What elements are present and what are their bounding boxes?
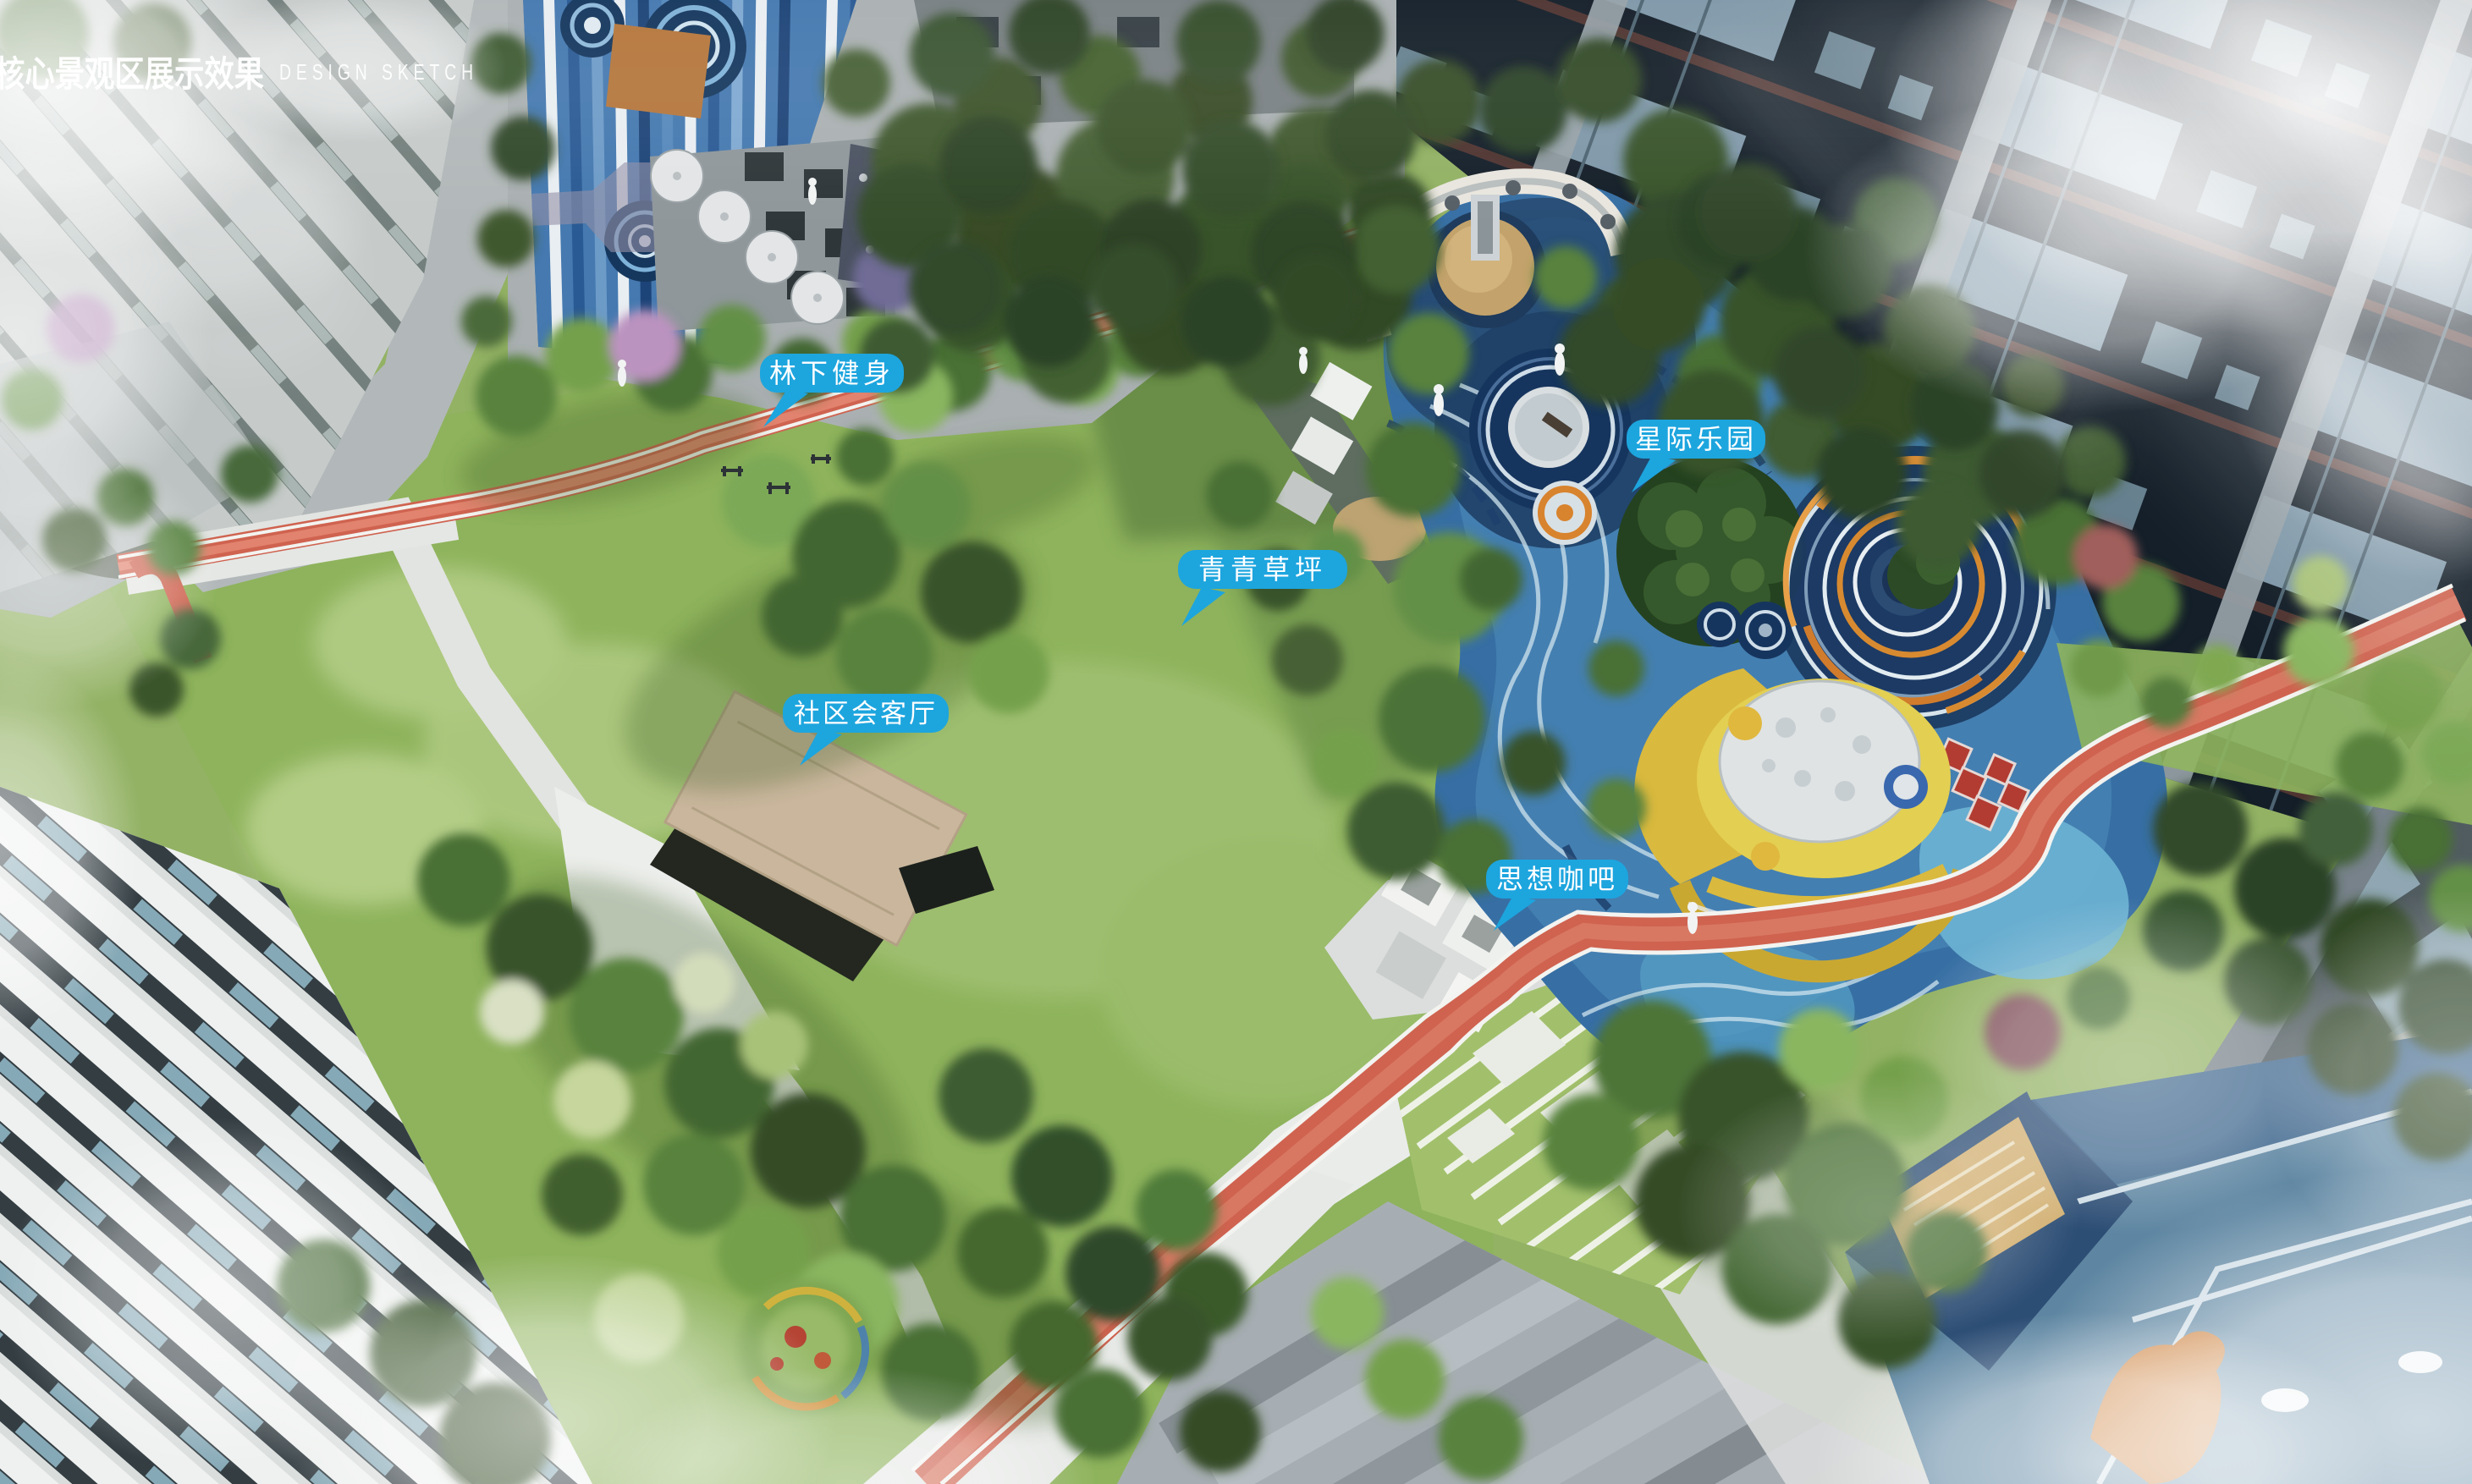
svg-text:核心景观区展示效果: 核心景观区展示效果 xyxy=(0,54,264,94)
svg-text:思想咖吧: 思想咖吧 xyxy=(1496,864,1618,894)
svg-text:林下健身: 林下健身 xyxy=(769,358,895,388)
svg-text:DESIGN SKETCH: DESIGN SKETCH xyxy=(279,59,478,85)
svg-text:星际乐园: 星际乐园 xyxy=(1635,424,1757,454)
svg-text:青青草坪: 青青草坪 xyxy=(1198,554,1327,585)
svg-text:社区会客厅: 社区会客厅 xyxy=(794,699,938,728)
